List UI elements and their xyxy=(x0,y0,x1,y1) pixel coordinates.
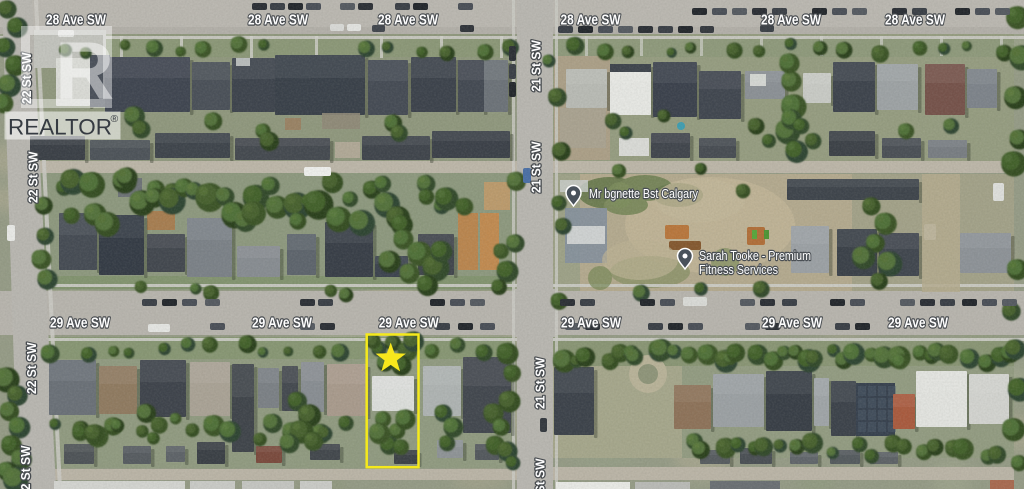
svg-text:29 Ave SW: 29 Ave SW xyxy=(888,316,948,332)
svg-text:28 Ave SW: 28 Ave SW xyxy=(561,13,621,29)
svg-text:21 St SW: 21 St SW xyxy=(533,458,548,489)
svg-text:Sarah Tooke - Premium: Sarah Tooke - Premium xyxy=(699,249,811,263)
svg-text:Fitness Services: Fitness Services xyxy=(699,263,778,277)
svg-text:22 St SW: 22 St SW xyxy=(18,445,33,489)
svg-text:21 St SW: 21 St SW xyxy=(533,357,548,409)
svg-text:21 St SW: 21 St SW xyxy=(529,40,544,92)
svg-text:22 St SW: 22 St SW xyxy=(24,342,39,394)
svg-text:29 Ave SW: 29 Ave SW xyxy=(252,316,312,332)
svg-text:29 Ave SW: 29 Ave SW xyxy=(762,316,822,332)
svg-text:29 Ave SW: 29 Ave SW xyxy=(379,316,439,332)
svg-text:Mr bgnette Bst Calgary: Mr bgnette Bst Calgary xyxy=(589,187,699,201)
svg-text:28 Ave SW: 28 Ave SW xyxy=(761,13,821,29)
svg-text:29 Ave SW: 29 Ave SW xyxy=(561,316,621,332)
svg-text:21 St SW: 21 St SW xyxy=(529,141,544,193)
svg-text:28 Ave SW: 28 Ave SW xyxy=(378,13,438,29)
svg-text:REALTOR: REALTOR xyxy=(8,114,112,139)
svg-text:29 Ave SW: 29 Ave SW xyxy=(50,316,110,332)
svg-text:22 St SW: 22 St SW xyxy=(26,151,41,203)
svg-text:®: ® xyxy=(111,113,119,125)
svg-text:R: R xyxy=(55,26,114,117)
svg-text:28 Ave SW: 28 Ave SW xyxy=(885,13,945,29)
svg-text:28 Ave SW: 28 Ave SW xyxy=(248,13,308,29)
